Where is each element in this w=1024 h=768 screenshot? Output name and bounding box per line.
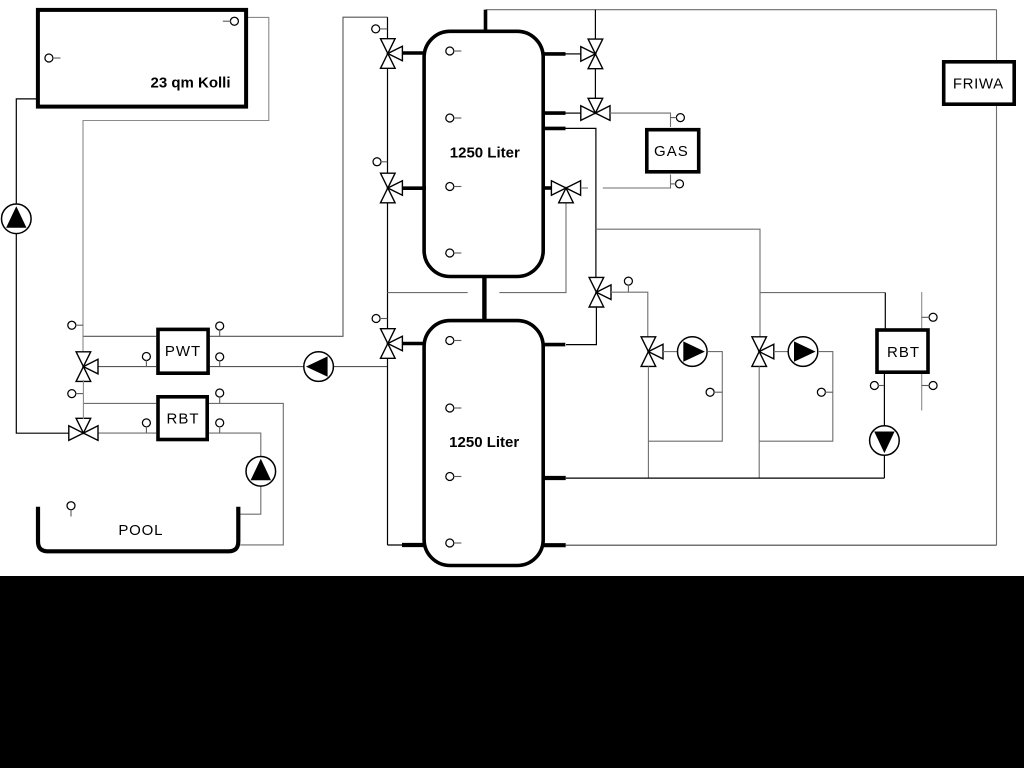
svg-text:POOL: POOL	[118, 522, 163, 539]
svg-text:GAS: GAS	[654, 143, 689, 160]
svg-text:RBT: RBT	[167, 411, 200, 428]
svg-text:1250 Liter: 1250 Liter	[449, 434, 519, 451]
svg-text:PWT: PWT	[165, 343, 201, 360]
svg-text:RBT: RBT	[887, 344, 920, 361]
svg-text:1250 Liter: 1250 Liter	[450, 144, 520, 161]
svg-text:FRIWA: FRIWA	[953, 75, 1004, 92]
svg-text:23 qm Kolli: 23 qm Kolli	[150, 75, 230, 92]
